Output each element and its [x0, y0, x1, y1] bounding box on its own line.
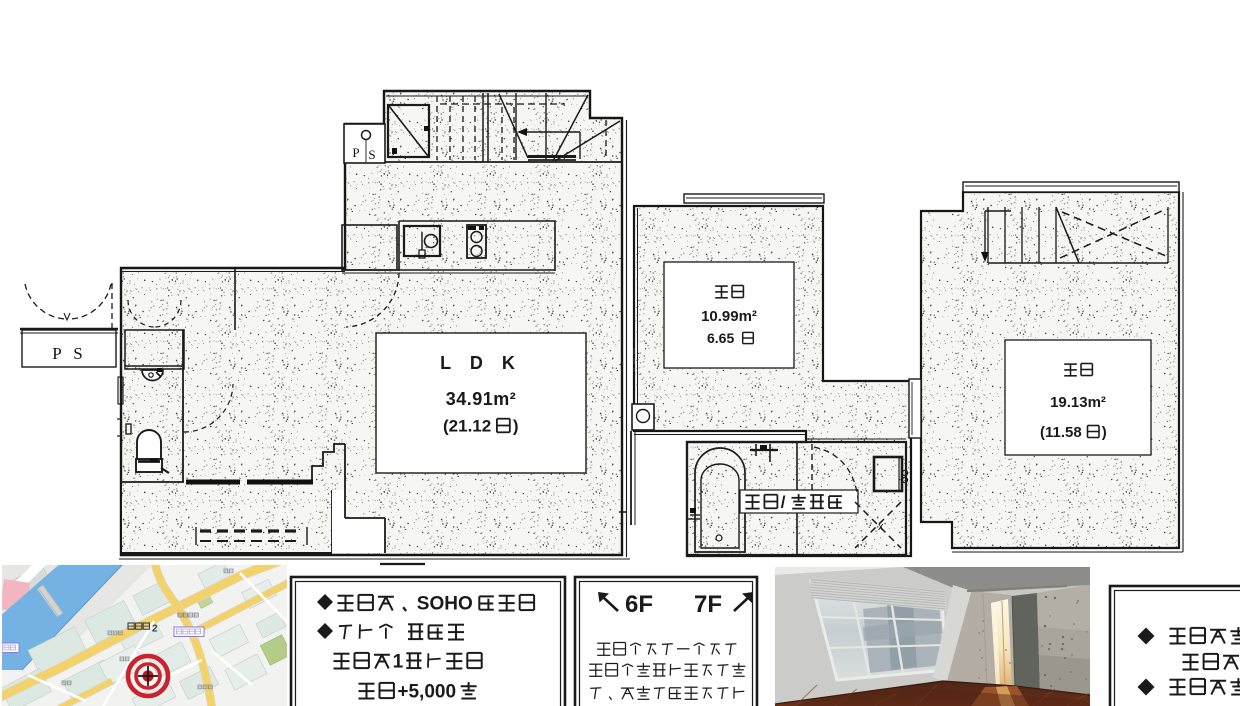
svg-text:1: 1: [393, 651, 404, 672]
svg-text:7F: 7F: [694, 591, 722, 618]
svg-text:SOHO: SOHO: [417, 593, 473, 614]
svg-text:+5,000: +5,000: [397, 681, 456, 702]
svg-text:6F: 6F: [625, 591, 653, 618]
